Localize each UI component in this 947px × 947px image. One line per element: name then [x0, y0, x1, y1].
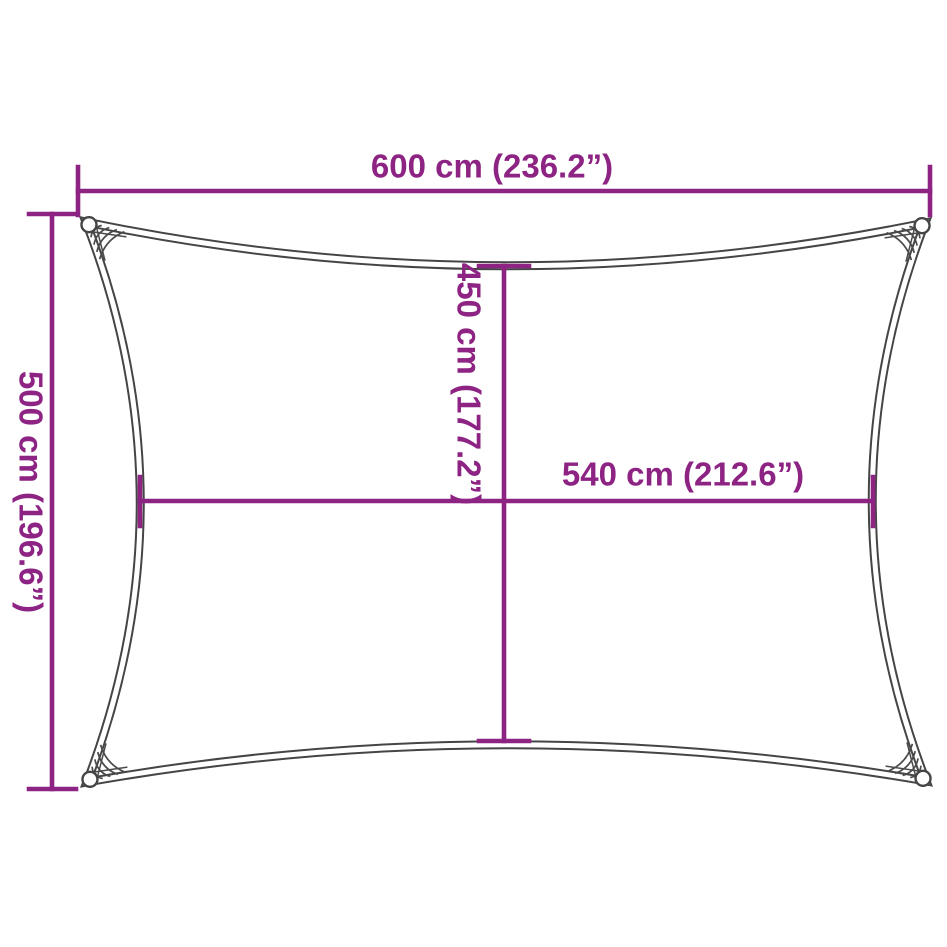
dimension-label-center-width: 540 cm (212.6”)	[562, 458, 804, 491]
dimension-diagram: 600 cm (236.2”) 500 cm (196.6”) 450 cm (…	[0, 0, 947, 947]
dimension-label-left-height: 500 cm (196.6”)	[15, 371, 48, 613]
dimension-label-top-width: 600 cm (236.2”)	[371, 150, 613, 183]
dimension-label-center-height: 450 cm (177.2”)	[453, 263, 486, 505]
